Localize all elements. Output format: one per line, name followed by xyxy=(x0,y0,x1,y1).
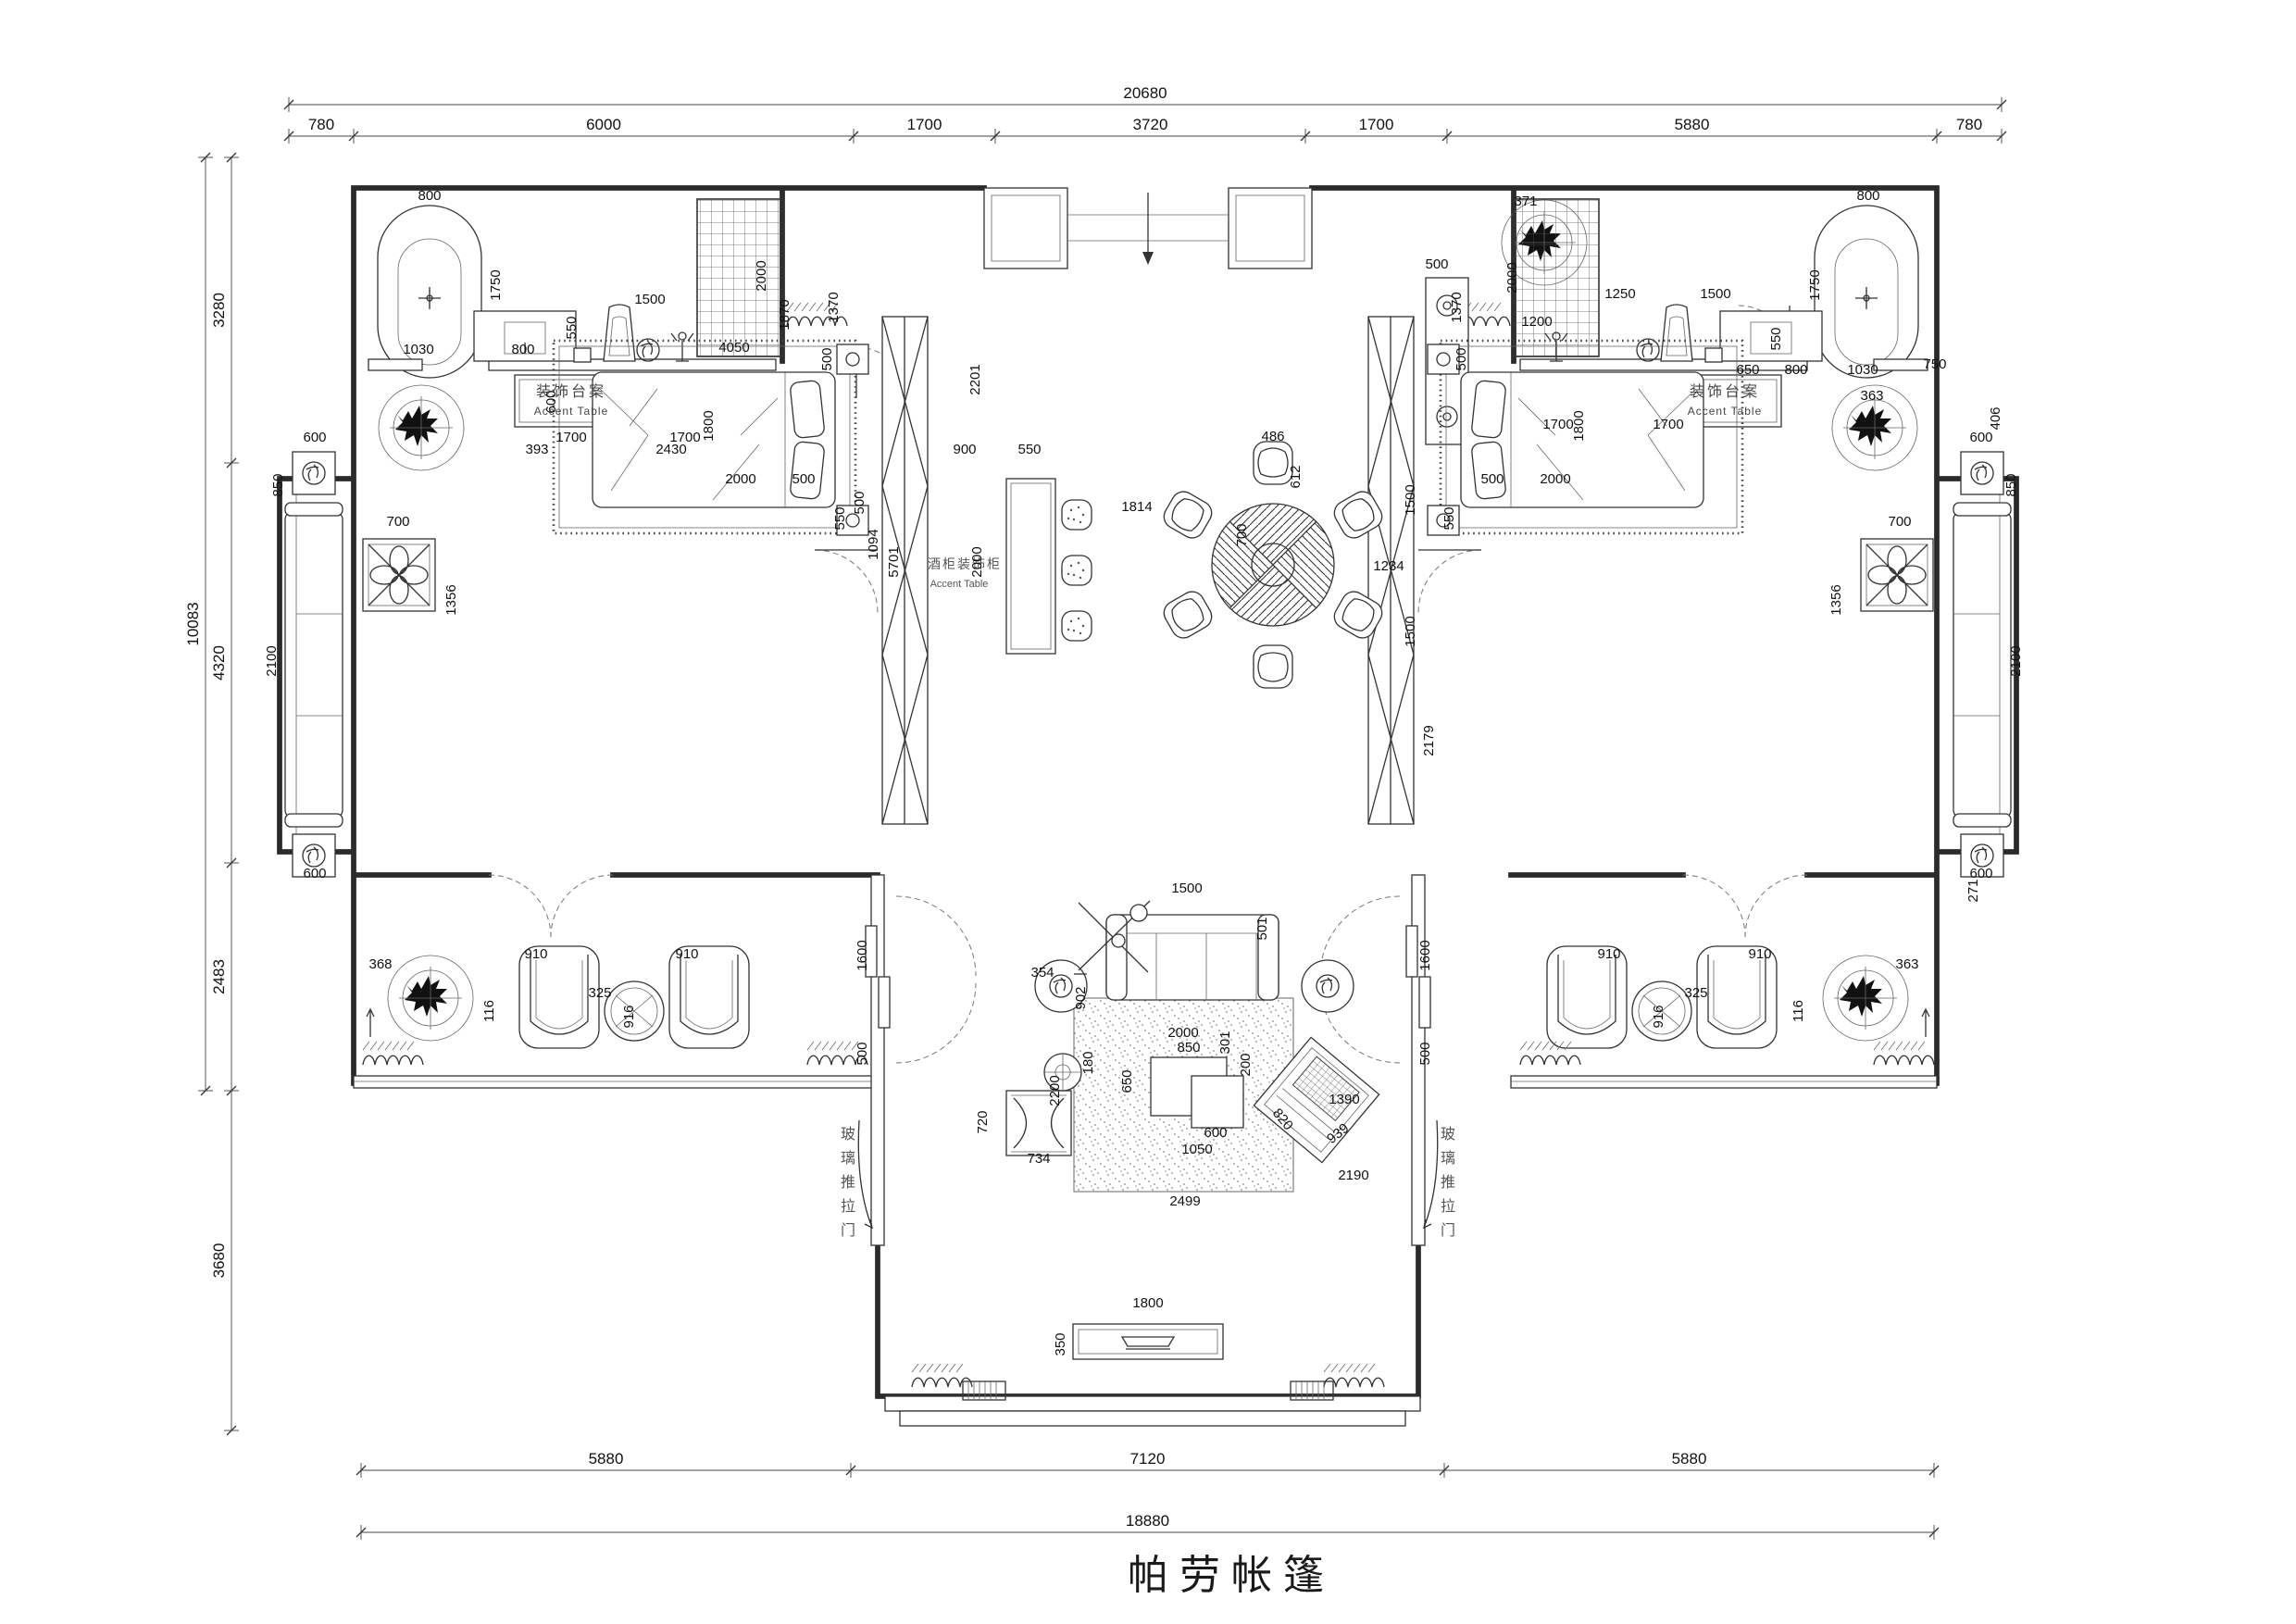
dim-label: 1500 xyxy=(1171,881,1202,896)
shower xyxy=(697,199,782,356)
dim-label: 1800 xyxy=(1571,410,1587,441)
dim-label: 10083 xyxy=(184,602,202,645)
drawing-title: 帕劳帐篷 xyxy=(1128,1553,1335,1598)
dim-label: 700 xyxy=(1888,514,1911,530)
dim-label: 902 xyxy=(1073,986,1089,1009)
dim-label: 1030 xyxy=(1847,362,1878,378)
dim-label: 180 xyxy=(1080,1051,1096,1074)
glass-door-label-char: 门 xyxy=(1441,1222,1455,1239)
dim-label: 2483 xyxy=(210,959,228,994)
dim-label: 500 xyxy=(1480,471,1504,487)
dim-label: 2000 xyxy=(754,260,769,291)
dim-label: 1030 xyxy=(403,342,433,357)
dim-label: 850 xyxy=(270,473,286,496)
dim-label: 271 xyxy=(1965,879,1981,902)
dim-label: 2000 xyxy=(1167,1025,1198,1041)
dim-label: 916 xyxy=(621,1005,637,1028)
dim-label: 18880 xyxy=(1126,1512,1169,1530)
glass-door-label-char: 拉 xyxy=(841,1198,855,1215)
dim-label: 1500 xyxy=(1700,286,1730,302)
dim-label: 550 xyxy=(564,316,580,339)
wine-cabinet-label-en: Accent Table xyxy=(930,579,989,590)
side-table xyxy=(293,452,335,494)
glass-door-label-char: 门 xyxy=(841,1222,855,1239)
entry-porch xyxy=(984,188,1312,269)
dim-label: 20680 xyxy=(1123,84,1167,102)
dim-label: 1500 xyxy=(634,292,665,307)
dining-table-pattern xyxy=(1204,495,1342,634)
dim-label: 2499 xyxy=(1169,1193,1200,1209)
dim-label: 1700 xyxy=(907,116,942,133)
dim-label: 700 xyxy=(1234,523,1250,546)
dim-label: 1356 xyxy=(1828,584,1844,615)
dim-label: 800 xyxy=(1856,188,1879,204)
dim-label: 3280 xyxy=(210,293,228,328)
dim-label: 301 xyxy=(1217,1031,1233,1054)
dim-label: 1356 xyxy=(443,584,459,615)
dim-label: 600 xyxy=(303,430,326,445)
glass-door-label-char: 拉 xyxy=(1441,1198,1455,1215)
side-table xyxy=(1961,452,2003,494)
dim-label: 612 xyxy=(1288,465,1304,488)
dim-label: 850 xyxy=(2003,473,2019,496)
coffee-table-small xyxy=(1192,1076,1243,1128)
glass-door-label-char: 璃 xyxy=(1441,1150,1455,1167)
dim-label: 910 xyxy=(1748,946,1771,962)
dim-label: 2000 xyxy=(725,471,755,487)
glass-door-label-char: 玻 xyxy=(841,1126,855,1143)
dim-label: 325 xyxy=(1684,985,1707,1001)
dim-label: 2100 xyxy=(264,645,280,676)
dim-label: 1390 xyxy=(1329,1092,1359,1107)
dim-label: 363 xyxy=(1895,956,1918,972)
dim-label: 406 xyxy=(1988,406,2003,430)
dim-label: 550 xyxy=(832,506,848,530)
dim-label: 916 xyxy=(1651,1005,1666,1028)
dim-label: 1370 xyxy=(1449,292,1465,322)
dim-label: 500 xyxy=(1425,256,1448,272)
nightstand xyxy=(837,344,868,374)
dim-label: 1250 xyxy=(1604,286,1635,302)
dim-label: 600 xyxy=(543,390,559,413)
dim-label: 1200 xyxy=(1521,314,1552,330)
dim-label: 1500 xyxy=(1403,616,1418,646)
dim-label: 720 xyxy=(975,1110,991,1133)
dim-label: 550 xyxy=(1441,506,1457,530)
dim-label: 371 xyxy=(1514,194,1537,209)
glass-door-label-char: 推 xyxy=(1441,1174,1455,1191)
accent-table-label-right-zh: 装饰台案 xyxy=(1690,383,1760,400)
dim-label: 393 xyxy=(525,442,548,457)
dim-label: 2430 xyxy=(655,442,686,457)
dim-label: 850 xyxy=(1177,1040,1200,1056)
dim-label: 1814 xyxy=(1121,499,1152,515)
vanity-chair xyxy=(604,305,635,361)
dim-label: 910 xyxy=(675,946,698,962)
dim-label: 910 xyxy=(1597,946,1620,962)
glass-door-arrow xyxy=(858,1120,872,1228)
dim-label: 550 xyxy=(1017,442,1041,457)
bottom-steps xyxy=(885,1396,1420,1426)
dim-label: 500 xyxy=(1454,347,1469,370)
glass-door-label-char: 推 xyxy=(841,1174,855,1191)
dim-label: 368 xyxy=(368,956,392,972)
dim-label: 1370 xyxy=(826,292,842,322)
dim-label: 800 xyxy=(418,188,441,204)
dim-label: 700 xyxy=(386,514,409,530)
floor-plan-canvas: 装饰台案 Accent Table 装饰台案 Accent Table 酒柜装饰… xyxy=(0,0,2296,1624)
dim-label: 500 xyxy=(852,491,867,514)
dim-label: 501 xyxy=(1254,917,1270,940)
dim-label: 1870 xyxy=(777,299,792,330)
dim-label: 734 xyxy=(1027,1151,1050,1167)
dim-label: 1234 xyxy=(1373,558,1404,574)
dim-label: 2179 xyxy=(1421,725,1437,756)
dim-label: 1700 xyxy=(1359,116,1394,133)
dim-label: 600 xyxy=(1969,430,1992,445)
dim-label: 800 xyxy=(1784,362,1807,378)
dim-label: 600 xyxy=(303,866,326,881)
dim-label: 2201 xyxy=(967,364,983,394)
glass-door-arrow xyxy=(1424,1120,1438,1228)
dim-label: 600 xyxy=(1204,1125,1227,1141)
dim-label: 650 xyxy=(1119,1069,1135,1093)
dim-label: 7120 xyxy=(1130,1450,1166,1468)
dim-label: 363 xyxy=(1860,388,1883,404)
dim-label: 1050 xyxy=(1181,1142,1212,1157)
round-side-table xyxy=(1302,960,1354,1012)
dim-label: 500 xyxy=(1417,1042,1433,1065)
dim-label: 1600 xyxy=(855,940,870,970)
dim-label: 200 xyxy=(1238,1053,1254,1076)
dim-label: 1800 xyxy=(701,410,717,441)
dim-label: 1700 xyxy=(1542,417,1573,432)
dim-label: 2000 xyxy=(969,546,985,577)
pillow xyxy=(1471,441,1506,499)
dim-label: 486 xyxy=(1261,429,1284,444)
dim-label: 2100 xyxy=(2008,645,2024,676)
dim-label: 3680 xyxy=(210,1243,228,1279)
dim-label: 1600 xyxy=(1417,940,1433,970)
dim-label: 780 xyxy=(1956,116,1982,133)
dim-label: 900 xyxy=(953,442,976,457)
left-bay-sofa xyxy=(285,452,435,877)
dim-label: 2000 xyxy=(1504,262,1520,293)
vanity-chair xyxy=(1661,305,1692,361)
dim-label: 4050 xyxy=(718,340,749,356)
dim-label: 116 xyxy=(1791,1000,1806,1022)
dim-label: 2000 xyxy=(1540,471,1570,487)
dim-label: 2200 xyxy=(1047,1075,1063,1106)
pillow xyxy=(790,380,825,438)
dim-label: 650 xyxy=(1736,362,1759,378)
pillow xyxy=(1471,380,1506,438)
living-sofa xyxy=(1106,915,1279,1000)
dining-set xyxy=(1160,442,1387,688)
dim-label: 600 xyxy=(1969,866,1992,881)
glass-door-label-char: 玻 xyxy=(1441,1126,1455,1143)
dim-label: 6000 xyxy=(586,116,621,133)
dim-label: 354 xyxy=(1030,965,1054,981)
left-terrace xyxy=(363,946,867,1065)
dim-label: 350 xyxy=(1053,1332,1068,1355)
dim-label: 1700 xyxy=(1653,417,1683,432)
dim-label: 3720 xyxy=(1133,116,1168,133)
dim-label: 910 xyxy=(524,946,547,962)
dim-label: 800 xyxy=(511,342,534,357)
dim-label: 550 xyxy=(1768,327,1784,350)
dim-label: 500 xyxy=(819,347,835,370)
dim-label: 116 xyxy=(481,1000,497,1022)
pillow xyxy=(790,441,825,499)
sofa xyxy=(1953,512,2011,818)
dim-label: 2190 xyxy=(1338,1168,1368,1183)
dim-label: 500 xyxy=(792,471,815,487)
accent-table-label-right-en: Accent Table xyxy=(1688,405,1763,418)
dim-label: 5880 xyxy=(1672,1450,1707,1468)
right-terrace xyxy=(1520,946,1934,1065)
wine-cabinet-label-zh: 酒柜装饰柜 xyxy=(928,556,1002,571)
dim-label: 1500 xyxy=(1403,484,1418,515)
bar-table xyxy=(1006,479,1055,654)
dim-label: 325 xyxy=(588,985,611,1001)
dim-label: 1700 xyxy=(555,430,586,445)
dim-label: 1094 xyxy=(866,529,881,559)
dim-label: 750 xyxy=(1923,356,1946,372)
dim-label: 500 xyxy=(855,1042,870,1065)
dim-label: 4320 xyxy=(210,645,228,681)
sofa xyxy=(285,512,343,818)
dim-label: 1750 xyxy=(488,269,504,300)
dim-label: 5880 xyxy=(589,1450,624,1468)
dim-label: 1800 xyxy=(1132,1295,1163,1311)
dim-label: 5701 xyxy=(886,546,902,577)
glass-door-label-char: 璃 xyxy=(841,1150,855,1167)
dim-label: 1750 xyxy=(1807,269,1823,300)
dim-label: 780 xyxy=(308,116,334,133)
dim-label: 5880 xyxy=(1675,116,1710,133)
media-room xyxy=(912,1324,1384,1400)
